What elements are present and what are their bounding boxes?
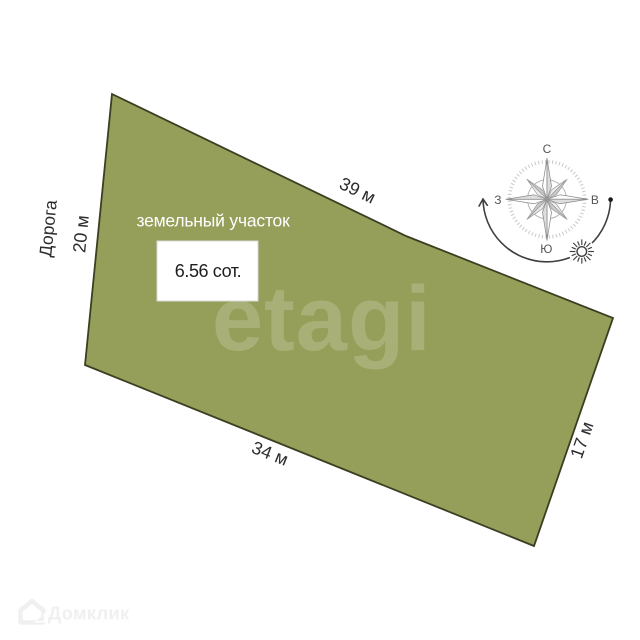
svg-text:С: С <box>543 142 552 156</box>
svg-text:20 м: 20 м <box>69 214 93 253</box>
svg-text:6.56 сот.: 6.56 сот. <box>175 261 242 281</box>
svg-text:В: В <box>591 193 599 207</box>
svg-text:З: З <box>494 193 501 207</box>
svg-text:Домклик: Домклик <box>48 603 130 624</box>
svg-text:Ю: Ю <box>540 242 552 256</box>
svg-text:земельный участок: земельный участок <box>136 211 290 231</box>
